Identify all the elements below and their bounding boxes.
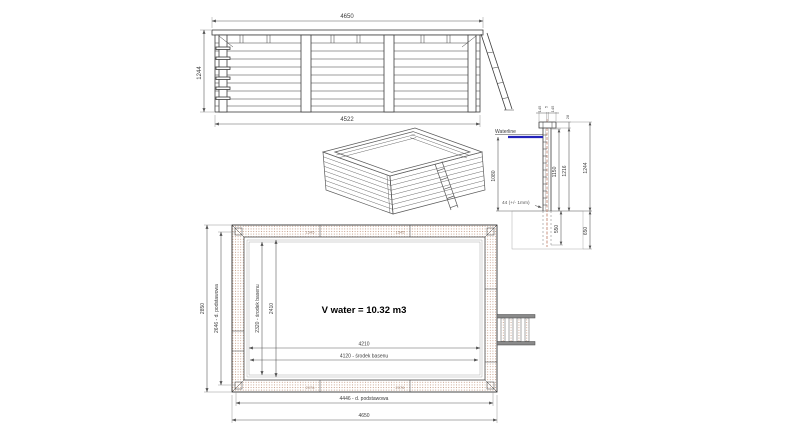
plank-label: 1545 <box>306 230 316 235</box>
plan-view: 1545 1545 2076 2076 V water = 10.32 m3 2… <box>190 212 540 446</box>
svg-text:4446 - d. podstawowa: 4446 - d. podstawowa <box>340 396 389 402</box>
plank-label: 2076 <box>396 385 406 390</box>
svg-text:44 (+/- 1mm): 44 (+/- 1mm) <box>502 200 530 206</box>
svg-text:5: 5 <box>544 105 549 108</box>
svg-text:650: 650 <box>583 227 589 236</box>
plank-label: 2076 <box>306 385 316 390</box>
water-volume-label: V water = 10.32 m3 <box>322 305 407 316</box>
elevation-height-label: 1244 <box>197 66 203 80</box>
svg-text:145: 145 <box>550 105 555 112</box>
section-dim-1150: 1150 <box>551 129 561 211</box>
elevation-top-dim: 4650 <box>212 14 483 28</box>
svg-text:2320 - środek basenu: 2320 - środek basenu <box>255 284 261 333</box>
section-waterline: Waterline <box>495 129 543 137</box>
waterline-label: Waterline <box>495 129 516 135</box>
section-cap-dims: 145 5 145 <box>536 105 559 121</box>
svg-text:1244: 1244 <box>583 162 589 173</box>
section-dim-44: 44 (+/- 1mm) <box>502 200 542 208</box>
svg-text:145: 145 <box>537 105 542 112</box>
section-dim-1080: 1080 <box>491 137 498 211</box>
plank-label: 1545 <box>396 230 406 235</box>
isometric-view <box>315 118 495 223</box>
svg-text:28: 28 <box>565 114 570 119</box>
elevation-post <box>301 35 311 112</box>
svg-text:1080: 1080 <box>491 170 497 181</box>
svg-text:2850: 2850 <box>200 303 206 314</box>
plan-dim-4446: 4446 - d. podstawowa <box>236 392 493 406</box>
elevation-pool-drawing <box>212 30 514 112</box>
plan-ladder <box>497 315 535 346</box>
svg-text:2410: 2410 <box>269 303 275 314</box>
svg-text:1150: 1150 <box>552 166 558 177</box>
svg-text:550: 550 <box>554 225 560 234</box>
section-dim-550: 550 <box>551 211 563 245</box>
elevation-view: 4650 1244 4522 <box>185 0 525 132</box>
svg-text:4650: 4650 <box>358 413 369 419</box>
elevation-corner-post <box>219 35 227 112</box>
section-dim-28-1216: 28 1216 <box>551 114 571 211</box>
technical-drawing-sheet: 4650 1244 4522 <box>0 0 794 446</box>
section-dim-1244-650: 1244 650 <box>556 122 592 249</box>
svg-text:1216: 1216 <box>562 165 568 176</box>
svg-text:2646 - d. podstawowa: 2646 - d. podstawowa <box>214 284 220 333</box>
elevation-corner-post <box>468 35 476 112</box>
elevation-width-label: 4650 <box>340 14 354 20</box>
svg-text:4210: 4210 <box>358 342 369 348</box>
elevation-post <box>384 35 394 112</box>
svg-text:4120 - środek basenu: 4120 - środek basenu <box>340 354 389 360</box>
elevation-left-dim: 1244 <box>197 30 214 112</box>
section-wall <box>539 122 556 211</box>
